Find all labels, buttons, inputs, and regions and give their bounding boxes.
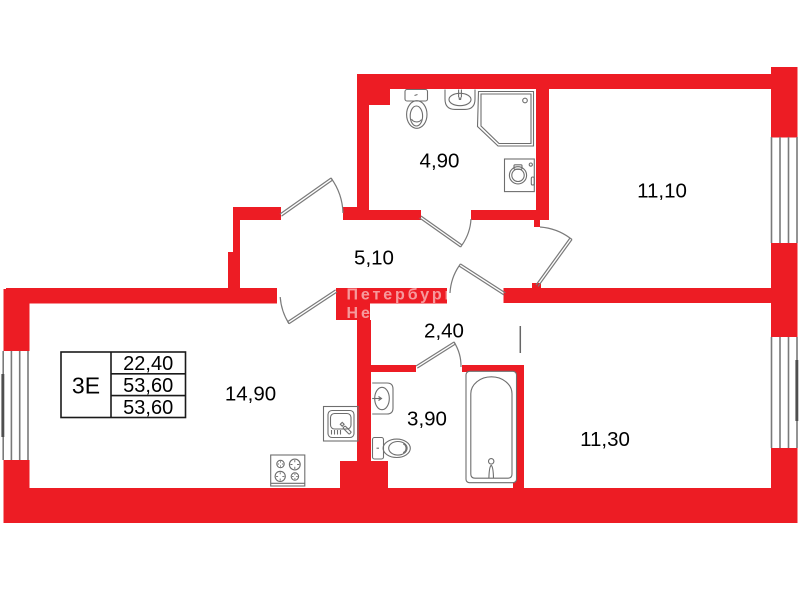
svg-text:5,10: 5,10: [354, 246, 394, 269]
svg-text:22,40: 22,40: [123, 353, 173, 375]
svg-text:4,90: 4,90: [420, 149, 460, 172]
svg-text:11,10: 11,10: [637, 179, 687, 202]
svg-text:3,90: 3,90: [407, 407, 447, 430]
svg-text:53,60: 53,60: [123, 397, 173, 419]
svg-text:11,30: 11,30: [580, 428, 630, 451]
svg-text:14,90: 14,90: [225, 382, 276, 405]
svg-text:3Е: 3Е: [72, 372, 100, 398]
svg-text:53,60: 53,60: [123, 375, 173, 397]
svg-text:2,40: 2,40: [424, 319, 464, 342]
svg-text:Петербургская: Петербургская: [347, 287, 501, 304]
